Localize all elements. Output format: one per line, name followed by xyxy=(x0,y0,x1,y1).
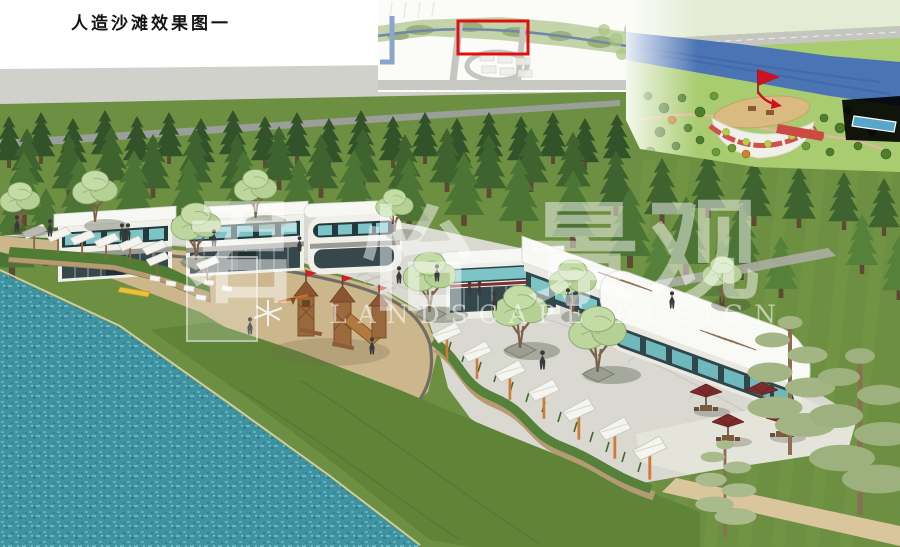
presentation-board: 君 怡 景 观 LANDSCAPE DESIGN xyxy=(0,0,900,547)
inset-maps xyxy=(0,0,900,547)
page-title: 人造沙滩效果图一 xyxy=(71,9,231,34)
master-plan-inset xyxy=(620,0,900,175)
key-plan-inset xyxy=(378,0,644,92)
